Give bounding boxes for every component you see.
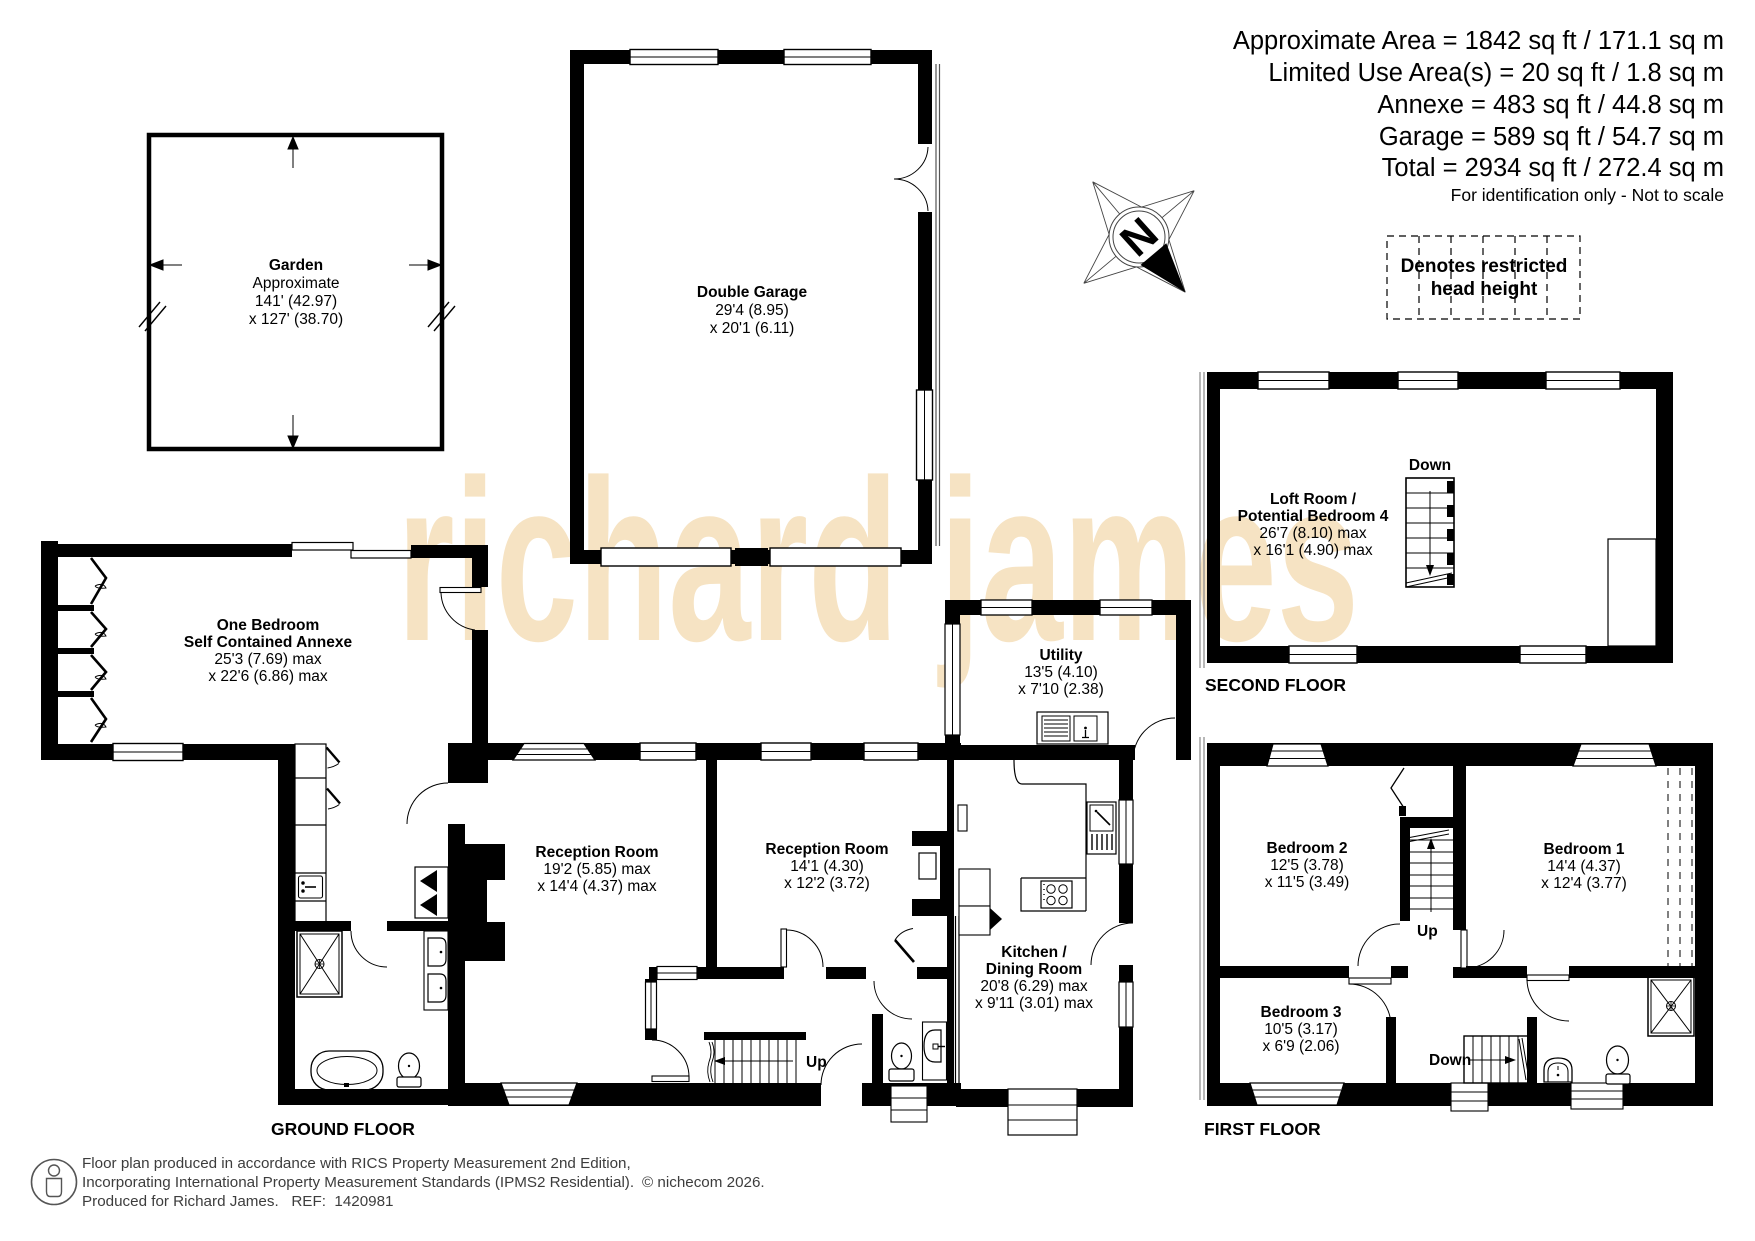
svg-text:Limited Use Area(s) = 20 sq ft: Limited Use Area(s) = 20 sq ft / 1.8 sq … <box>1268 59 1724 87</box>
svg-text:Incorporating International Pr: Incorporating International Property Mea… <box>82 1174 634 1191</box>
svg-text:29'4 (8.95): 29'4 (8.95) <box>715 302 789 319</box>
svg-text:Garage = 589 sq ft / 54.7 sq m: Garage = 589 sq ft / 54.7 sq m <box>1379 123 1724 151</box>
svg-text:Annexe = 483 sq ft / 44.8 sq m: Annexe = 483 sq ft / 44.8 sq m <box>1377 91 1724 119</box>
svg-text:Down: Down <box>1409 457 1451 474</box>
svg-text:12'5 (3.78): 12'5 (3.78) <box>1270 857 1344 874</box>
svg-text:14'4 (4.37): 14'4 (4.37) <box>1547 858 1621 875</box>
svg-text:Approximate Area = 1842 sq ft: Approximate Area = 1842 sq ft / 171.1 sq… <box>1233 27 1724 55</box>
svg-text:19'2 (5.85) max: 19'2 (5.85) max <box>543 861 650 878</box>
svg-text:10'5 (3.17): 10'5 (3.17) <box>1264 1021 1338 1038</box>
svg-text:head height: head height <box>1431 279 1538 300</box>
svg-text:Self Contained Annexe: Self Contained Annexe <box>184 634 353 651</box>
svg-text:x 6'9 (2.06): x 6'9 (2.06) <box>1262 1038 1339 1055</box>
svg-text:20'8 (6.29) max: 20'8 (6.29) max <box>980 978 1087 995</box>
svg-text:x 16'1 (4.90) max: x 16'1 (4.90) max <box>1253 542 1373 559</box>
svg-text:Denotes restricted: Denotes restricted <box>1401 256 1568 277</box>
svg-text:Bedroom 2: Bedroom 2 <box>1267 840 1348 857</box>
svg-text:Up: Up <box>1417 923 1438 940</box>
svg-text:x 20'1 (6.11): x 20'1 (6.11) <box>710 320 795 337</box>
svg-text:x 127' (38.70): x 127' (38.70) <box>249 311 343 328</box>
svg-text:Loft Room /: Loft Room / <box>1270 491 1357 508</box>
svg-text:Down: Down <box>1429 1052 1471 1069</box>
svg-text:Total = 2934 sq ft / 272.4 sq: Total = 2934 sq ft / 272.4 sq m <box>1382 154 1724 182</box>
svg-text:Approximate: Approximate <box>252 275 339 292</box>
svg-text:Bedroom 3: Bedroom 3 <box>1261 1004 1342 1021</box>
svg-text:x 14'4 (4.37) max: x 14'4 (4.37) max <box>537 878 657 895</box>
svg-text:25'3 (7.69) max: 25'3 (7.69) max <box>214 651 321 668</box>
svg-text:13'5 (4.10): 13'5 (4.10) <box>1024 664 1098 681</box>
svg-text:For identification only - Not: For identification only - Not to scale <box>1451 185 1724 205</box>
svg-text:FIRST FLOOR: FIRST FLOOR <box>1204 1119 1321 1139</box>
svg-text:141' (42.97): 141' (42.97) <box>255 293 337 310</box>
svg-text:Reception Room: Reception Room <box>765 841 888 858</box>
svg-text:x 12'4 (3.77): x 12'4 (3.77) <box>1541 875 1627 892</box>
svg-text:One Bedroom: One Bedroom <box>217 617 319 634</box>
svg-text:Garden: Garden <box>269 257 323 274</box>
svg-text:Produced for Richard James.: Produced for Richard James. REF: 1420981 <box>82 1193 394 1210</box>
svg-text:x 12'2 (3.72): x 12'2 (3.72) <box>784 875 870 892</box>
svg-text:Bedroom 1: Bedroom 1 <box>1544 841 1625 858</box>
svg-text:SECOND FLOOR: SECOND FLOOR <box>1205 675 1346 695</box>
svg-text:Kitchen /: Kitchen / <box>1001 944 1067 961</box>
svg-text:Reception Room: Reception Room <box>535 844 658 861</box>
svg-text:Utility: Utility <box>1039 647 1082 664</box>
svg-text:x 7'10 (2.38): x 7'10 (2.38) <box>1018 681 1104 698</box>
svg-text:x 11'5 (3.49): x 11'5 (3.49) <box>1265 874 1350 891</box>
svg-text:x 22'6 (6.86) max: x 22'6 (6.86) max <box>208 668 328 685</box>
svg-text:GROUND FLOOR: GROUND FLOOR <box>271 1119 415 1139</box>
svg-text:26'7 (8.10) max: 26'7 (8.10) max <box>1259 525 1366 542</box>
svg-text:Dining Room: Dining Room <box>986 961 1082 978</box>
svg-text:14'1 (4.30): 14'1 (4.30) <box>790 858 864 875</box>
svg-text:Floor plan produced in accorda: Floor plan produced in accordance with R… <box>82 1155 631 1172</box>
svg-text:© nichecom 2026.: © nichecom 2026. <box>642 1174 765 1191</box>
svg-text:Up: Up <box>806 1054 827 1071</box>
svg-text:Potential Bedroom 4: Potential Bedroom 4 <box>1238 508 1389 525</box>
svg-text:Double Garage: Double Garage <box>697 284 808 301</box>
svg-text:x 9'11 (3.01) max: x 9'11 (3.01) max <box>975 995 1093 1012</box>
